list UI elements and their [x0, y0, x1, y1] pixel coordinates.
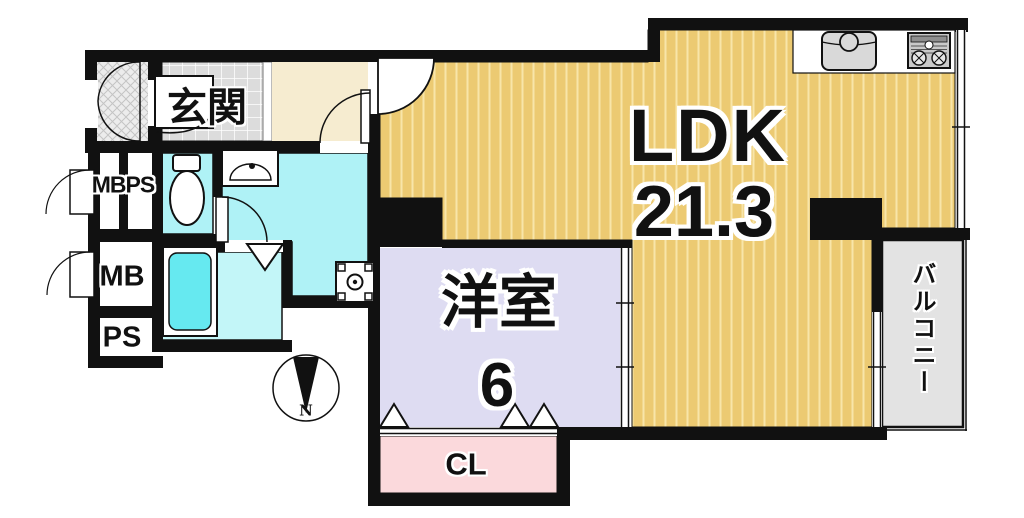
- western-room-size-label: 6: [480, 355, 514, 417]
- gas-stove-icon: [908, 33, 950, 68]
- washbasin-icon: [222, 150, 278, 186]
- washing-machine-icon: [336, 262, 374, 302]
- ps-label: PS: [103, 324, 142, 353]
- balcony-label: バルコニー: [909, 262, 933, 397]
- kitchen-sink-icon: [822, 32, 876, 70]
- closet-label: CL: [445, 449, 486, 480]
- floor-plan: 玄関 MBPS MB PS LDK 21.3 洋室 6 CL バルコニー N: [0, 0, 1024, 518]
- mbps-label: MBPS: [92, 174, 154, 197]
- floor-plan-drawing: [0, 0, 1024, 518]
- genkan-step: [263, 62, 272, 141]
- toilet-icon: [170, 155, 204, 225]
- closet-opening: [380, 427, 557, 436]
- ldk-size-label: 21.3: [634, 176, 774, 248]
- western-room-label: 洋室: [441, 274, 557, 332]
- genkan-label: 玄関: [167, 88, 247, 128]
- meter-box-doors: [46, 170, 94, 297]
- hallway-floor: [272, 62, 368, 141]
- mb-label: MB: [99, 263, 144, 292]
- ldk-label: LDK: [629, 99, 787, 173]
- kitchen-counter: [793, 30, 955, 73]
- bathtub-icon: [163, 247, 217, 336]
- compass-north-label: N: [299, 404, 313, 419]
